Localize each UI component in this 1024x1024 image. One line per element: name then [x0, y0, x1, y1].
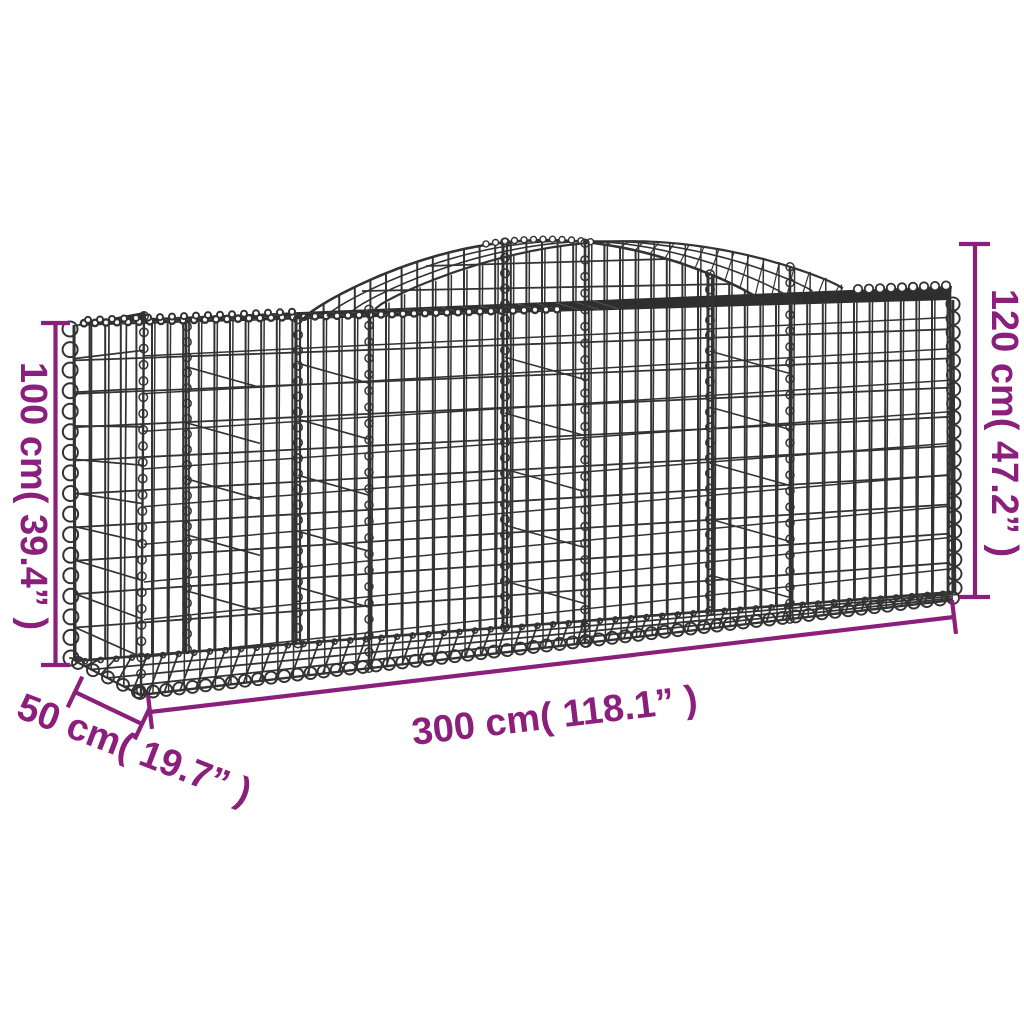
svg-text:100 cm( 39.4” ): 100 cm( 39.4” ): [12, 362, 54, 630]
svg-text:300 cm( 118.1” ): 300 cm( 118.1” ): [409, 678, 699, 754]
svg-text:120 cm( 47.2” ): 120 cm( 47.2” ): [983, 289, 1024, 557]
